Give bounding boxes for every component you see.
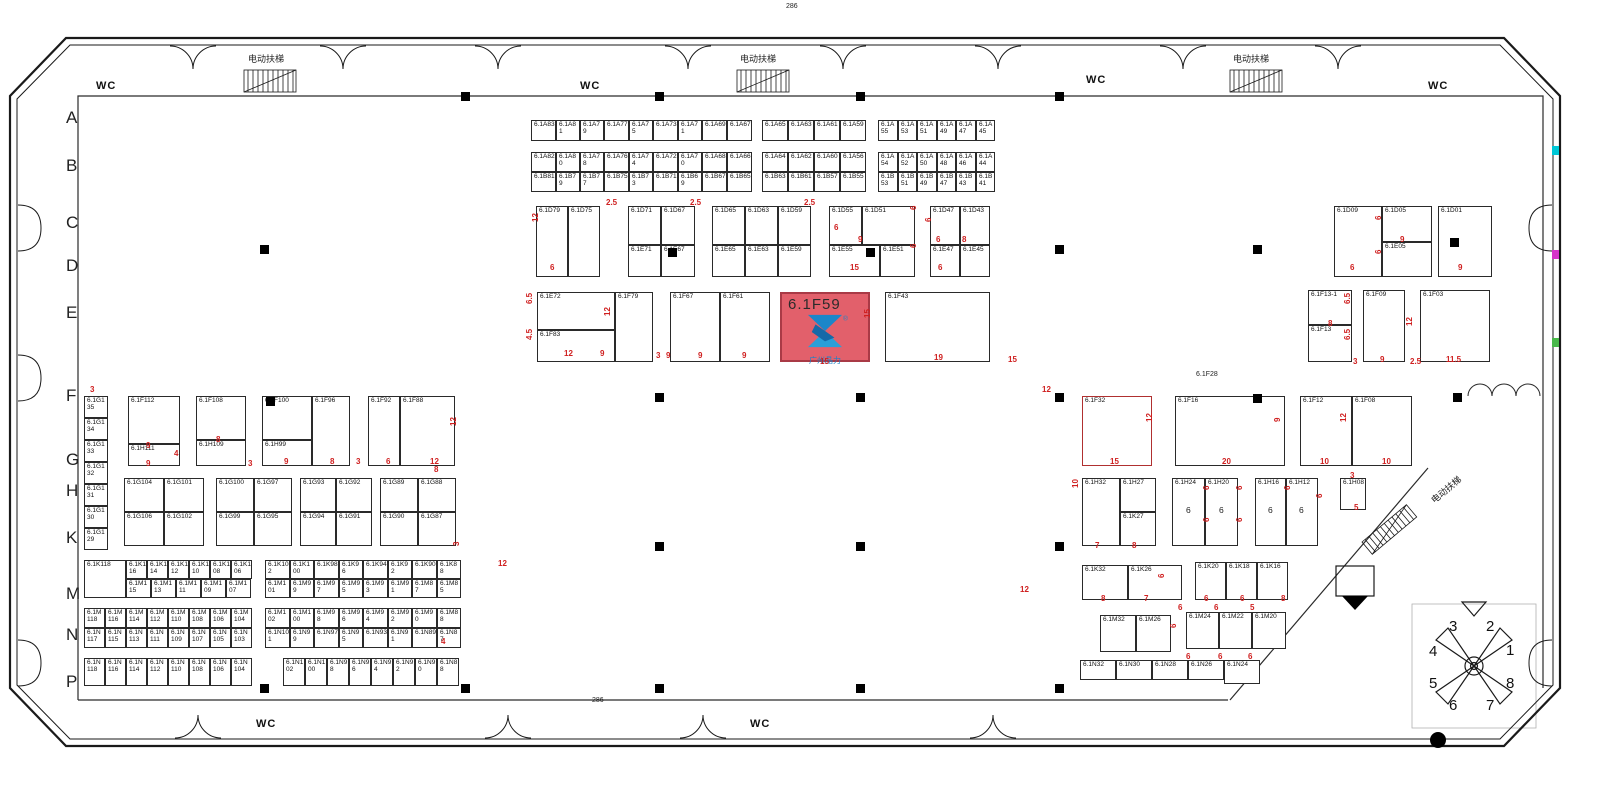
booth-6.1M115[interactable]: 6.1M115 (126, 579, 151, 598)
booth-6.1E47[interactable]: 6.1E47 (930, 245, 960, 277)
booth-6.1G100[interactable]: 6.1G100 (216, 478, 254, 512)
booth-6.1B53[interactable]: 6.1B53 (878, 172, 898, 192)
booth-6.1B65[interactable]: 6.1B65 (727, 172, 752, 192)
booth-6.1N32[interactable]: 6.1N32 (1080, 660, 1116, 680)
booth-6.1A78[interactable]: 6.1A78 (580, 152, 604, 172)
booth-6.1K102[interactable]: 6.1K102 (265, 560, 290, 579)
booth-6.1M90[interactable]: 6.1M90 (412, 608, 437, 628)
booth-6.1M114[interactable]: 6.1M114 (126, 608, 147, 628)
booth-6.1F92[interactable]: 6.1F92 (368, 396, 400, 466)
booth-6.1A53[interactable]: 6.1A53 (898, 120, 917, 141)
booth-6.1N26[interactable]: 6.1N26 (1188, 660, 1224, 680)
booth-6.1B47[interactable]: 6.1B47 (937, 172, 956, 192)
booth-6.1A77[interactable]: 6.1A77 (604, 120, 629, 141)
booth-6.1M94[interactable]: 6.1M94 (363, 608, 388, 628)
column-square (655, 393, 664, 402)
booth-6.1G134[interactable]: 6.1G134 (84, 418, 108, 440)
booth-label: 6.1D55 (830, 207, 861, 215)
booth-6.1N109[interactable]: 6.1N109 (168, 628, 189, 648)
dimension-label: 6.5 (1344, 329, 1352, 340)
booth-6.1A48[interactable]: 6.1A48 (937, 152, 956, 172)
booth-6.1M96[interactable]: 6.1M96 (339, 608, 363, 628)
booth-6.1A62[interactable]: 6.1A62 (788, 152, 814, 172)
booth-6.1K108[interactable]: 6.1K108 (210, 560, 231, 579)
booth-6.1B57[interactable]: 6.1B57 (814, 172, 840, 192)
booth-6.1N111[interactable]: 6.1N111 (147, 628, 168, 648)
booth-6.1F59[interactable]: 6.1F59®广州晶力 (780, 292, 870, 362)
booth-6.1N89[interactable]: 6.1N89 (412, 628, 437, 648)
booth-6.1E67[interactable]: 6.1E67 (661, 245, 695, 277)
dimension-label: 6 (936, 236, 940, 244)
booth-6.1G97[interactable]: 6.1G97 (254, 478, 292, 512)
booth-6.1N115[interactable]: 6.1N115 (105, 628, 126, 648)
booth-6.1B69[interactable]: 6.1B69 (678, 172, 702, 192)
booth-6.1A50[interactable]: 6.1A50 (917, 152, 937, 172)
booth-6.1M99[interactable]: 6.1M99 (290, 579, 314, 598)
booth-6.1D67[interactable]: 6.1D67 (661, 206, 695, 245)
booth-label: 6.1M22 (1220, 613, 1251, 621)
booth-6.1M116[interactable]: 6.1M116 (105, 608, 126, 628)
booth-6.1N116[interactable]: 6.1N116 (105, 658, 126, 686)
booth-6.1E63[interactable]: 6.1E63 (745, 245, 778, 277)
dimension-label: 9 (1274, 418, 1282, 422)
booth-6.1N106[interactable]: 6.1N106 (210, 658, 231, 686)
booth-6.1D47[interactable]: 6.1D47 (930, 206, 960, 245)
booth-6.1K20[interactable]: 6.1K20 (1195, 562, 1226, 600)
booth-6.1M104[interactable]: 6.1M104 (231, 608, 252, 628)
booth-6.1D75[interactable]: 6.1D75 (568, 206, 600, 277)
booth-label: 6.1M109 (202, 580, 225, 595)
booth-6.1M98[interactable]: 6.1M98 (314, 608, 339, 628)
booth-6.1K98[interactable]: 6.1K98 (314, 560, 339, 579)
booth-6.1A49[interactable]: 6.1A49 (937, 120, 956, 141)
booth-6.1G87[interactable]: 6.1G87 (418, 512, 456, 546)
booth-6.1N96[interactable]: 6.1N96 (349, 658, 371, 686)
booth-label: 6.1A48 (938, 153, 955, 168)
booth-6.1M108[interactable]: 6.1M108 (189, 608, 210, 628)
dimension-label: 6 (1186, 653, 1190, 661)
booth-6.1F16[interactable]: 6.1F16 (1175, 396, 1285, 466)
booth-label: 6.1A45 (977, 121, 994, 136)
booth-6.1B49[interactable]: 6.1B49 (917, 172, 937, 192)
dimension-label: 6 (1284, 486, 1292, 490)
booth-6.1B61[interactable]: 6.1B61 (788, 172, 814, 192)
booth-6.1B77[interactable]: 6.1B77 (580, 172, 604, 192)
booth-6.1F43[interactable]: 6.1F43 (885, 292, 990, 362)
dimension-label: 6 (1268, 506, 1273, 515)
booth-label: 6.1A62 (789, 153, 813, 161)
booth-6.1M24[interactable]: 6.1M24 (1186, 612, 1219, 649)
booth-6.1N102[interactable]: 6.1N102 (283, 658, 305, 686)
booth-6.1D71[interactable]: 6.1D71 (628, 206, 661, 245)
dimension-label: 6 (1203, 518, 1211, 522)
booth-6.1N91[interactable]: 6.1N91 (388, 628, 412, 648)
booth-6.1G88[interactable]: 6.1G88 (418, 478, 456, 512)
booth-6.1M22[interactable]: 6.1M22 (1219, 612, 1252, 649)
row-letter-M: M (66, 584, 80, 604)
booth-6.1A45[interactable]: 6.1A45 (976, 120, 995, 141)
booth-6.1M118[interactable]: 6.1M118 (84, 608, 105, 628)
booth-6.1A65[interactable]: 6.1A65 (762, 120, 788, 141)
booth-6.1G102[interactable]: 6.1G102 (164, 512, 204, 546)
booth-6.1D01[interactable]: 6.1D01 (1438, 206, 1492, 277)
booth-6.1K106[interactable]: 6.1K106 (231, 560, 252, 579)
booth-6.1G91[interactable]: 6.1G91 (336, 512, 372, 546)
booth-label: 6.1A47 (957, 121, 975, 136)
booth-label: 6.1A63 (789, 121, 813, 129)
booth-6.1M93[interactable]: 6.1M93 (363, 579, 388, 598)
booth-6.1N107[interactable]: 6.1N107 (189, 628, 210, 648)
booth-6.1N99[interactable]: 6.1N99 (290, 628, 314, 648)
booth-6.1A80[interactable]: 6.1A80 (556, 152, 580, 172)
booth-6.1M26[interactable]: 6.1M26 (1136, 615, 1171, 652)
booth-6.1A75[interactable]: 6.1A75 (629, 120, 653, 141)
booth-6.1B67[interactable]: 6.1B67 (702, 172, 727, 192)
booth-label: 6.1N113 (127, 629, 146, 644)
booth-6.1G92[interactable]: 6.1G92 (336, 478, 372, 512)
booth-6.1N103[interactable]: 6.1N103 (231, 628, 252, 648)
booth-6.1G95[interactable]: 6.1G95 (254, 512, 292, 546)
booth-6.1B63[interactable]: 6.1B63 (762, 172, 788, 192)
booth-6.1N95[interactable]: 6.1N95 (339, 628, 363, 648)
booth-6.1D59[interactable]: 6.1D59 (778, 206, 811, 245)
dimension-label: 3 (1353, 358, 1357, 366)
booth-6.1N92[interactable]: 6.1N92 (393, 658, 415, 686)
booth-6.1G130[interactable]: 6.1G130 (84, 506, 108, 528)
booth-6.1M106[interactable]: 6.1M106 (210, 608, 231, 628)
booth-6.1K96[interactable]: 6.1K96 (339, 560, 363, 579)
booth-6.1K92[interactable]: 6.1K92 (388, 560, 412, 579)
booth-6.1B41[interactable]: 6.1B41 (976, 172, 995, 192)
dimension-label: 9 (1458, 264, 1462, 272)
booth-label: 6.1M116 (106, 609, 125, 624)
column-square (461, 684, 470, 693)
booth-6.1F03[interactable]: 6.1F03 (1420, 290, 1490, 362)
booth-6.1D05[interactable]: 6.1D05 (1382, 206, 1432, 242)
booth-6.1B73[interactable]: 6.1B73 (629, 172, 653, 192)
booth-6.1M85[interactable]: 6.1M85 (437, 579, 461, 598)
booth-6.1H111[interactable]: 6.1H111 (128, 444, 180, 466)
booth-label: 6.1B71 (654, 173, 677, 181)
booth-6.1M107[interactable]: 6.1M107 (226, 579, 251, 598)
dimension-label: 3 (453, 542, 461, 546)
booth-6.1M111[interactable]: 6.1M111 (176, 579, 201, 598)
booth-6.1M91[interactable]: 6.1M91 (388, 579, 412, 598)
booth-6.1A68[interactable]: 6.1A68 (702, 152, 727, 172)
booth-label: 6.1D59 (779, 207, 810, 215)
booth-6.1F88[interactable]: 6.1F88 (400, 396, 455, 466)
booth-6.1N101[interactable]: 6.1N101 (265, 628, 290, 648)
booth-label: 6.1A82 (532, 153, 555, 161)
booth-label: 6.1E72 (538, 293, 614, 301)
booth-6.1E65[interactable]: 6.1E65 (712, 245, 745, 277)
booth-6.1N93[interactable]: 6.1N93 (363, 628, 388, 648)
booth-6.1N100[interactable]: 6.1N100 (305, 658, 327, 686)
booth-6.1N97[interactable]: 6.1N97 (314, 628, 339, 648)
booth-label: 6.1M90 (413, 609, 436, 624)
booth-label: 6.1H109 (197, 441, 245, 449)
booth-6.1N112[interactable]: 6.1N112 (147, 658, 168, 686)
booth-6.1G104[interactable]: 6.1G104 (124, 478, 164, 512)
booth-6.1F67[interactable]: 6.1F67 (670, 292, 720, 362)
booth-label: 6.1D65 (713, 207, 744, 215)
booth-6.1K118[interactable]: 6.1K118 (84, 560, 126, 598)
booth-6.1G133[interactable]: 6.1G133 (84, 440, 108, 462)
dimension-label: 3 (248, 460, 252, 468)
booth-label: 6.1E47 (931, 246, 959, 254)
booth-6.1G135[interactable]: 6.1G135 (84, 396, 108, 418)
booth-6.1M32[interactable]: 6.1M32 (1100, 615, 1136, 652)
booth-6.1G99[interactable]: 6.1G99 (216, 512, 254, 546)
booth-6.1G101[interactable]: 6.1G101 (164, 478, 204, 512)
booth-6.1A76[interactable]: 6.1A76 (604, 152, 629, 172)
booth-6.1E45[interactable]: 6.1E45 (960, 245, 990, 277)
booth-6.1F112[interactable]: 6.1F112 (128, 396, 180, 444)
booth-6.1K94[interactable]: 6.1K94 (363, 560, 388, 579)
booth-label: 6.1M112 (148, 609, 167, 624)
booth-6.1A74[interactable]: 6.1A74 (629, 152, 653, 172)
booth-6.1A60[interactable]: 6.1A60 (814, 152, 840, 172)
booth-6.1N90[interactable]: 6.1N90 (415, 658, 437, 686)
column-square (1055, 393, 1064, 402)
booth-6.1M109[interactable]: 6.1M109 (201, 579, 226, 598)
column-square (866, 248, 875, 257)
booth-label: 6.1A65 (763, 121, 787, 129)
booth-6.1N117[interactable]: 6.1N117 (84, 628, 105, 648)
booth-6.1A64[interactable]: 6.1A64 (762, 152, 788, 172)
booth-6.1M100[interactable]: 6.1M100 (290, 608, 314, 628)
booth-label: 6.1E71 (629, 246, 660, 254)
booth-6.1A81[interactable]: 6.1A81 (556, 120, 580, 141)
booth-6.1K116[interactable]: 6.1K116 (126, 560, 147, 579)
dimension-label: 4 (174, 450, 178, 458)
booth-6.1E51[interactable]: 6.1E51 (880, 245, 915, 277)
booth-label: 6.1N116 (106, 659, 125, 674)
booth-6.1B71[interactable]: 6.1B71 (653, 172, 678, 192)
booth-6.1H08[interactable]: 6.1H08 (1340, 478, 1366, 510)
booth-6.1G89[interactable]: 6.1G89 (380, 478, 418, 512)
wc-label: WC (750, 718, 770, 730)
booth-label: 6.1K90 (413, 561, 436, 569)
dimension-label: 8 (330, 458, 334, 466)
booth-label: 6.1F96 (313, 397, 349, 405)
booth-label: 6.1G93 (301, 479, 335, 487)
column-square (655, 542, 664, 551)
booth-6.1M101[interactable]: 6.1M101 (265, 579, 290, 598)
wc-label: WC (256, 718, 276, 730)
booth-6.1A79[interactable]: 6.1A79 (580, 120, 604, 141)
booth-6.1B75[interactable]: 6.1B75 (604, 172, 629, 192)
booth-6.1H27[interactable]: 6.1H27 (1120, 478, 1156, 512)
booth-6.1A82[interactable]: 6.1A82 (531, 152, 556, 172)
booth-label: 6.1B79 (557, 173, 579, 188)
booth-label: 6.1A60 (815, 153, 839, 161)
booth-label: 6.1M108 (190, 609, 209, 624)
booth-6.1M112[interactable]: 6.1M112 (147, 608, 168, 628)
dimension-label: 9 (146, 460, 150, 468)
booth-6.1K88[interactable]: 6.1K88 (437, 560, 461, 579)
dimension-label: 8 (1281, 595, 1285, 603)
booth-6.1N98[interactable]: 6.1N98 (327, 658, 349, 686)
booth-label: 6.1K114 (148, 561, 167, 576)
booth-6.1E05[interactable]: 6.1E05 (1382, 242, 1432, 277)
dimension-label: 6 (1350, 264, 1354, 272)
row-letter-A: A (66, 108, 77, 128)
booth-6.1A67[interactable]: 6.1A67 (727, 120, 752, 141)
dimension-label: 9 (600, 350, 604, 358)
booth-6.1G90[interactable]: 6.1G90 (380, 512, 418, 546)
dimension-label: 5 (1250, 604, 1254, 612)
column-square (856, 393, 865, 402)
dimension-label: 9 (1400, 236, 1404, 244)
booth-6.1A83[interactable]: 6.1A83 (531, 120, 556, 141)
column-square (655, 92, 664, 101)
booth-6.1A63[interactable]: 6.1A63 (788, 120, 814, 141)
booth-6.1A69[interactable]: 6.1A69 (702, 120, 727, 141)
booth-6.1N108[interactable]: 6.1N108 (189, 658, 210, 686)
booth-6.1N28[interactable]: 6.1N28 (1152, 660, 1188, 680)
booth-label: 6.1B77 (581, 173, 603, 188)
dimension-label: 6 (1170, 624, 1178, 628)
booth-6.1K110[interactable]: 6.1K110 (189, 560, 210, 579)
booth-6.1K114[interactable]: 6.1K114 (147, 560, 168, 579)
booth-6.1F32[interactable]: 6.1F32 (1082, 396, 1152, 466)
booth-6.1M97[interactable]: 6.1M97 (314, 579, 339, 598)
booth-6.1N118[interactable]: 6.1N118 (84, 658, 105, 686)
booth-label: 6.1F09 (1364, 291, 1404, 299)
booth-6.1G106[interactable]: 6.1G106 (124, 512, 164, 546)
dimension-label: 9 (284, 458, 288, 466)
booth-6.1E71[interactable]: 6.1E71 (628, 245, 661, 277)
booth-6.1A71[interactable]: 6.1A71 (678, 120, 702, 141)
row-letter-C: C (66, 213, 78, 233)
booth-6.1M102[interactable]: 6.1M102 (265, 608, 290, 628)
booth-6.1H32[interactable]: 6.1H32 (1082, 478, 1120, 546)
booth-label: 6.1N103 (232, 629, 251, 644)
booth-6.1K26[interactable]: 6.1K26 (1128, 565, 1182, 600)
booth-6.1G94[interactable]: 6.1G94 (300, 512, 336, 546)
booth-6.1K112[interactable]: 6.1K112 (168, 560, 189, 579)
row-letter-B: B (66, 156, 77, 176)
booth-label: 6.1N91 (389, 629, 411, 644)
booth-6.1B55[interactable]: 6.1B55 (840, 172, 866, 192)
booth-6.1A46[interactable]: 6.1A46 (956, 152, 976, 172)
booth-6.1B79[interactable]: 6.1B79 (556, 172, 580, 192)
booth-6.1N94[interactable]: 6.1N94 (371, 658, 393, 686)
booth-label: 6.1N109 (169, 629, 188, 644)
booth-label: 6.1K88 (438, 561, 460, 576)
booth-label: 6.1H08 (1341, 479, 1365, 487)
booth-6.1A47[interactable]: 6.1A47 (956, 120, 976, 141)
booth-label: 6.1F32 (1083, 397, 1151, 405)
column-square (1055, 92, 1064, 101)
booth-6.1B43[interactable]: 6.1B43 (956, 172, 976, 192)
dimension-label: 6 (910, 206, 918, 210)
booth-6.1F08[interactable]: 6.1F08 (1352, 396, 1412, 466)
dimension-label: 3 (656, 352, 660, 360)
booth-label: 6.1M97 (315, 580, 338, 595)
booth-6.1A44[interactable]: 6.1A44 (976, 152, 995, 172)
dimension-label: 6.5 (526, 293, 534, 304)
booth-6.1D51[interactable]: 6.1D51 (862, 206, 915, 245)
wc-label: WC (580, 80, 600, 92)
dimension-label: 9 (666, 352, 670, 360)
booth-6.1H109[interactable]: 6.1H109 (196, 440, 246, 466)
booth-6.1B81[interactable]: 6.1B81 (531, 172, 556, 192)
booth-label: 6.1M87 (413, 580, 436, 595)
booth-6.1G93[interactable]: 6.1G93 (300, 478, 336, 512)
booth-6.1G129[interactable]: 6.1G129 (84, 528, 108, 550)
booth-6.1D65[interactable]: 6.1D65 (712, 206, 745, 245)
booth-6.1N88[interactable]: 6.1N88 (437, 658, 459, 686)
booth-6.1A52[interactable]: 6.1A52 (898, 152, 917, 172)
booth-6.1B51[interactable]: 6.1B51 (898, 172, 917, 192)
booth-6.1N110[interactable]: 6.1N110 (168, 658, 189, 686)
booth-label: 6.1M93 (364, 580, 387, 595)
booth-6.1F108[interactable]: 6.1F108 (196, 396, 246, 440)
dimension-label: 4.5 (526, 329, 534, 340)
booth-label: 6.1N30 (1117, 661, 1151, 669)
booth-6.1K27[interactable]: 6.1K27 (1120, 512, 1156, 546)
booth-6.1D63[interactable]: 6.1D63 (745, 206, 778, 245)
booth-label: 6.1B57 (815, 173, 839, 181)
booth-6.1M20[interactable]: 6.1M20 (1252, 612, 1286, 649)
booth-6.1M113[interactable]: 6.1M113 (151, 579, 176, 598)
booth-label: 6.1K108 (211, 561, 230, 576)
compass-number-5: 5 (1429, 675, 1437, 692)
booth-6.1A70[interactable]: 6.1A70 (678, 152, 702, 172)
booth-6.1N105[interactable]: 6.1N105 (210, 628, 231, 648)
booth-6.1N24[interactable]: 6.1N24 (1224, 660, 1260, 684)
booth-6.1G131[interactable]: 6.1G131 (84, 484, 108, 506)
booth-label: 6.1G134 (85, 419, 107, 434)
booth-label: 6.1N24 (1225, 661, 1259, 669)
booth-6.1F09[interactable]: 6.1F09 (1363, 290, 1405, 362)
booth-6.1F79[interactable]: 6.1F79 (615, 292, 653, 362)
booth-6.1A66[interactable]: 6.1A66 (727, 152, 752, 172)
booth-6.1K90[interactable]: 6.1K90 (412, 560, 437, 579)
booth-6.1N113[interactable]: 6.1N113 (126, 628, 147, 648)
booth-6.1N30[interactable]: 6.1N30 (1116, 660, 1152, 680)
booth-6.1F96[interactable]: 6.1F96 (312, 396, 350, 466)
booth-6.1A56[interactable]: 6.1A56 (840, 152, 866, 172)
booth-6.1N104[interactable]: 6.1N104 (231, 658, 252, 686)
booth-6.1M87[interactable]: 6.1M87 (412, 579, 437, 598)
booth-label: 6.1M91 (389, 580, 411, 595)
booth-6.1K100[interactable]: 6.1K100 (290, 560, 314, 579)
booth-6.1A51[interactable]: 6.1A51 (917, 120, 937, 141)
booth-6.1F12[interactable]: 6.1F12 (1300, 396, 1352, 466)
booth-6.1M110[interactable]: 6.1M110 (168, 608, 189, 628)
booth-label: 6.1D47 (931, 207, 959, 215)
booth-label: 6.1K27 (1121, 513, 1155, 521)
booth-6.1G132[interactable]: 6.1G132 (84, 462, 108, 484)
booth-6.1M95[interactable]: 6.1M95 (339, 579, 363, 598)
booth-6.1N114[interactable]: 6.1N114 (126, 658, 147, 686)
booth-6.1E59[interactable]: 6.1E59 (778, 245, 811, 277)
booth-label: 6.1A54 (879, 153, 897, 168)
booth-6.1A55[interactable]: 6.1A55 (878, 120, 898, 141)
booth-label: 6.1N104 (232, 659, 251, 674)
booth-label: 6.1A74 (630, 153, 652, 168)
booth-6.1M92[interactable]: 6.1M92 (388, 608, 412, 628)
booth-6.1A61[interactable]: 6.1A61 (814, 120, 840, 141)
booth-6.1M88[interactable]: 6.1M88 (437, 608, 461, 628)
booth-6.1A73[interactable]: 6.1A73 (653, 120, 678, 141)
booth-6.1A72[interactable]: 6.1A72 (653, 152, 678, 172)
booth-6.1A54[interactable]: 6.1A54 (878, 152, 898, 172)
booth-6.1A59[interactable]: 6.1A59 (840, 120, 866, 141)
